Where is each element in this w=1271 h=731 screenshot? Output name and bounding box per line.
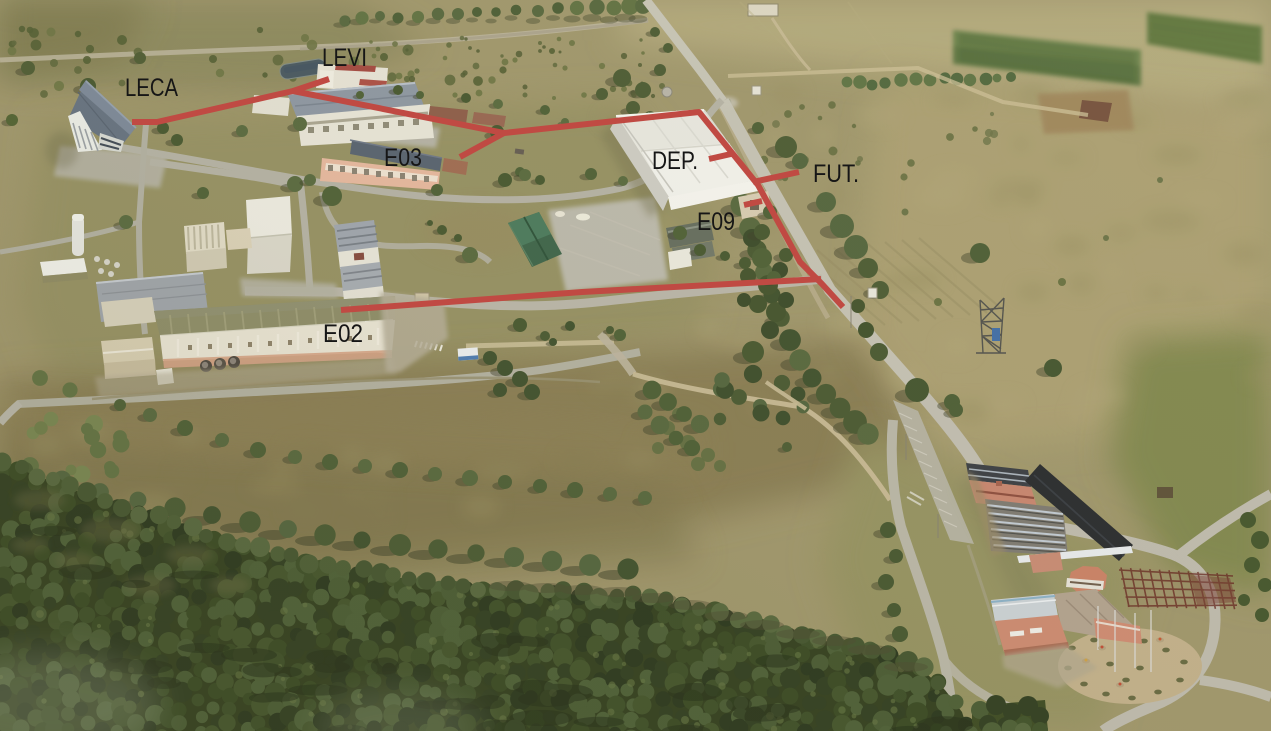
- svg-text:LECA: LECA: [125, 74, 178, 102]
- svg-text:E03: E03: [384, 144, 422, 172]
- svg-text:FUT.: FUT.: [813, 160, 859, 188]
- svg-text:DEP.: DEP.: [652, 147, 698, 175]
- svg-text:E02: E02: [323, 320, 363, 348]
- svg-text:E09: E09: [697, 208, 735, 236]
- svg-text:LEVI: LEVI: [322, 44, 367, 72]
